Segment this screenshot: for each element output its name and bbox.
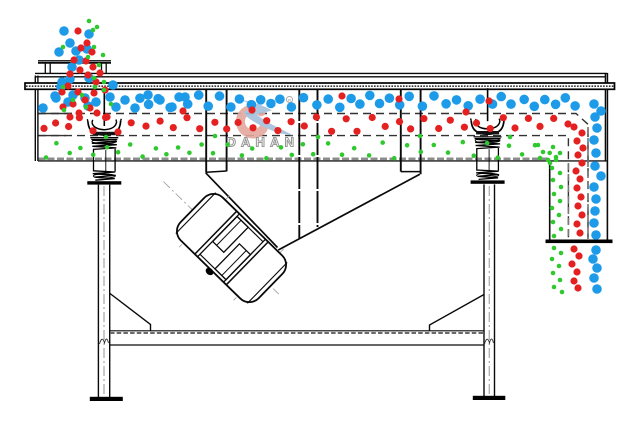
- svg-text:DAHAN: DAHAN: [227, 135, 296, 150]
